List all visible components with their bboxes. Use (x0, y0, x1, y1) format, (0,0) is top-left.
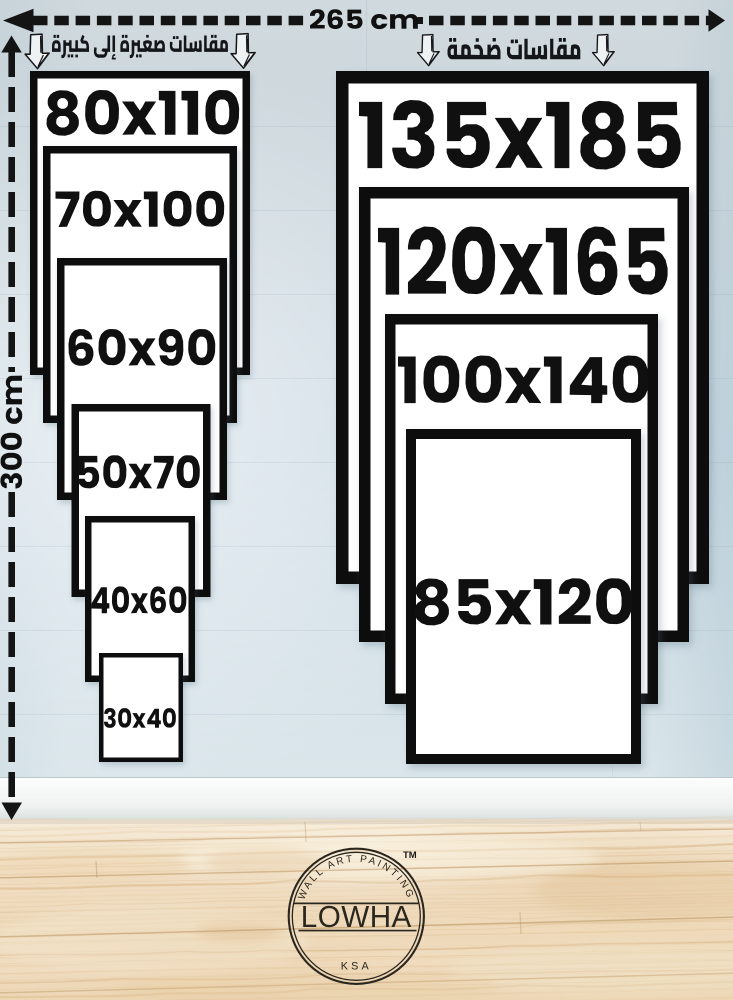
svg-text:KSA: KSA (341, 961, 372, 973)
svg-text:TM: TM (403, 850, 417, 861)
svg-text:LOWHA: LOWHA (301, 899, 412, 934)
